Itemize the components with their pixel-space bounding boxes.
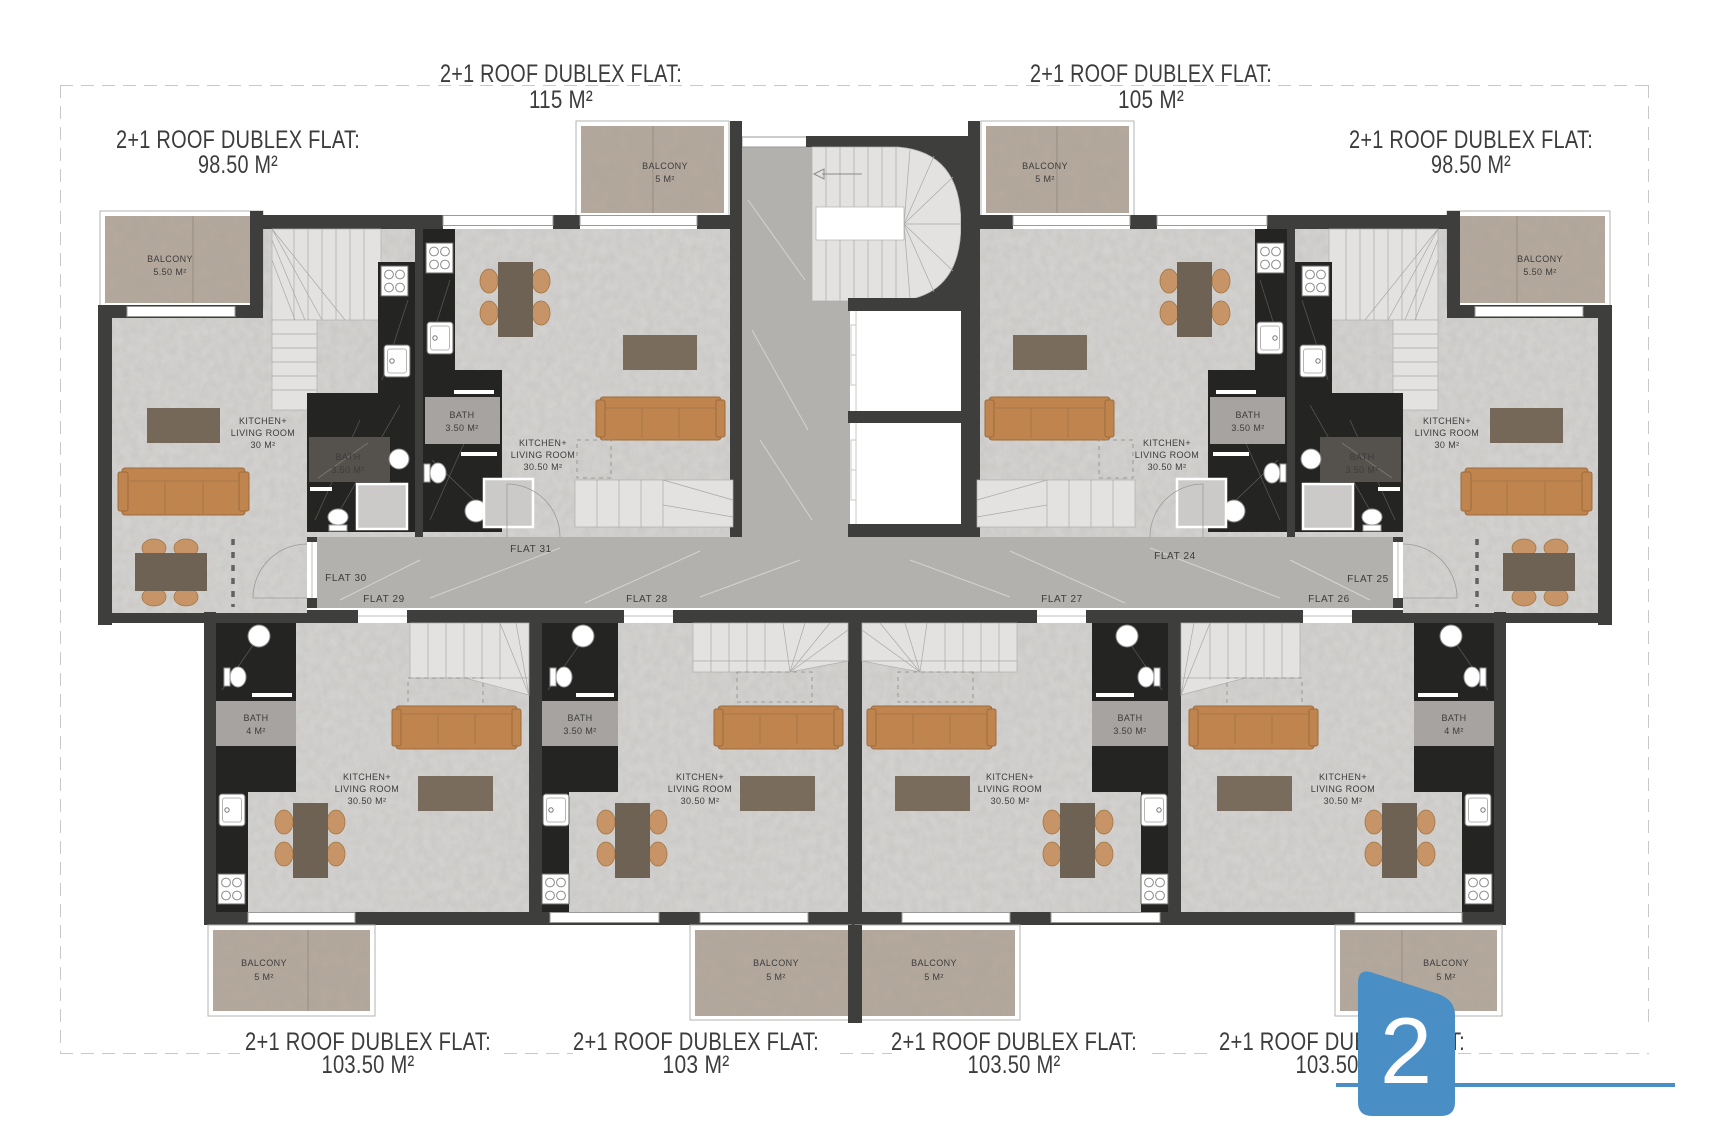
svg-text:LIVING ROOM: LIVING ROOM [511, 450, 575, 460]
svg-text:5 M²: 5 M² [655, 174, 675, 184]
svg-text:5.50 M²: 5.50 M² [1523, 267, 1556, 277]
svg-text:103 M²: 103 M² [663, 1051, 730, 1079]
svg-text:KITCHEN+: KITCHEN+ [519, 438, 567, 448]
svg-text:KITCHEN+: KITCHEN+ [1423, 416, 1471, 426]
svg-text:3.50 M²: 3.50 M² [445, 423, 478, 433]
svg-text:30 M²: 30 M² [250, 440, 275, 450]
svg-text:2+1 ROOF DUBLEX FLAT:: 2+1 ROOF DUBLEX FLAT: [440, 60, 682, 88]
svg-text:98.50 M²: 98.50 M² [1431, 151, 1511, 179]
svg-text:BALCONY: BALCONY [147, 254, 193, 264]
svg-text:30.50 M²: 30.50 M² [1324, 796, 1363, 806]
svg-text:3.50 M²: 3.50 M² [1113, 726, 1146, 736]
svg-text:5 M²: 5 M² [766, 972, 786, 982]
svg-text:BATH: BATH [450, 410, 475, 420]
svg-text:5 M²: 5 M² [1436, 972, 1456, 982]
svg-text:KITCHEN+: KITCHEN+ [986, 772, 1034, 782]
svg-text:3.50 M²: 3.50 M² [1345, 465, 1378, 475]
svg-text:BALCONY: BALCONY [1517, 254, 1563, 264]
svg-text:BALCONY: BALCONY [911, 958, 957, 968]
svg-text:30.50 M²: 30.50 M² [524, 462, 563, 472]
svg-text:KITCHEN+: KITCHEN+ [343, 772, 391, 782]
svg-text:KITCHEN+: KITCHEN+ [1319, 772, 1367, 782]
svg-text:BATH: BATH [1236, 410, 1261, 420]
svg-text:FLAT 24: FLAT 24 [1154, 551, 1196, 562]
svg-text:FLAT 25: FLAT 25 [1347, 574, 1389, 585]
svg-text:BALCONY: BALCONY [1022, 161, 1068, 171]
svg-text:30.50 M²: 30.50 M² [991, 796, 1030, 806]
svg-text:115 M²: 115 M² [529, 86, 593, 114]
svg-text:BALCONY: BALCONY [753, 958, 799, 968]
svg-text:FLAT 29: FLAT 29 [363, 594, 405, 605]
svg-text:4 M²: 4 M² [1444, 726, 1464, 736]
svg-text:BATH: BATH [244, 713, 269, 723]
svg-text:LIVING ROOM: LIVING ROOM [1135, 450, 1199, 460]
svg-text:LIVING ROOM: LIVING ROOM [1415, 428, 1479, 438]
svg-text:3.50 M²: 3.50 M² [1231, 423, 1264, 433]
svg-text:BATH: BATH [1350, 452, 1375, 462]
svg-text:KITCHEN+: KITCHEN+ [1143, 438, 1191, 448]
svg-text:5 M²: 5 M² [924, 972, 944, 982]
svg-text:FLAT 26: FLAT 26 [1308, 594, 1350, 605]
svg-text:5 M²: 5 M² [1035, 174, 1055, 184]
svg-text:3.50 M²: 3.50 M² [331, 465, 364, 475]
svg-text:2+1 ROOF DUBLEX FLAT:: 2+1 ROOF DUBLEX FLAT: [1349, 126, 1593, 154]
svg-text:LIVING ROOM: LIVING ROOM [1311, 784, 1375, 794]
svg-text:BALCONY: BALCONY [1423, 958, 1469, 968]
svg-text:103.50 M²: 103.50 M² [968, 1051, 1061, 1079]
svg-text:FLAT 31: FLAT 31 [510, 544, 552, 555]
svg-text:BALCONY: BALCONY [241, 958, 287, 968]
svg-text:FLAT 30: FLAT 30 [325, 573, 367, 584]
svg-text:BATH: BATH [336, 452, 361, 462]
svg-text:3.50 M²: 3.50 M² [563, 726, 596, 736]
svg-text:30 M²: 30 M² [1434, 440, 1459, 450]
svg-text:30.50 M²: 30.50 M² [348, 796, 387, 806]
svg-text:30.50 M²: 30.50 M² [1148, 462, 1187, 472]
svg-text:KITCHEN+: KITCHEN+ [676, 772, 724, 782]
svg-text:LIVING ROOM: LIVING ROOM [668, 784, 732, 794]
svg-text:LIVING ROOM: LIVING ROOM [231, 428, 295, 438]
svg-text:LIVING ROOM: LIVING ROOM [335, 784, 399, 794]
svg-text:5.50 M²: 5.50 M² [153, 267, 186, 277]
svg-text:BATH: BATH [1118, 713, 1143, 723]
svg-text:BALCONY: BALCONY [642, 161, 688, 171]
svg-text:2+1 ROOF DUBLEX FLAT:: 2+1 ROOF DUBLEX FLAT: [1030, 60, 1272, 88]
svg-text:FLAT 28: FLAT 28 [626, 594, 668, 605]
svg-text:98.50 M²: 98.50 M² [198, 151, 278, 179]
svg-text:2: 2 [1380, 998, 1432, 1103]
svg-text:5 M²: 5 M² [254, 972, 274, 982]
svg-text:LIVING ROOM: LIVING ROOM [978, 784, 1042, 794]
svg-text:BATH: BATH [568, 713, 593, 723]
svg-text:BATH: BATH [1442, 713, 1467, 723]
svg-text:4 M²: 4 M² [246, 726, 266, 736]
svg-text:2+1 ROOF DUBLEX FLAT:: 2+1 ROOF DUBLEX FLAT: [116, 126, 360, 154]
svg-text:105 M²: 105 M² [1118, 86, 1184, 114]
svg-text:103.50 M²: 103.50 M² [322, 1051, 415, 1079]
svg-text:30.50 M²: 30.50 M² [681, 796, 720, 806]
svg-text:FLAT 27: FLAT 27 [1041, 594, 1083, 605]
svg-text:KITCHEN+: KITCHEN+ [239, 416, 287, 426]
